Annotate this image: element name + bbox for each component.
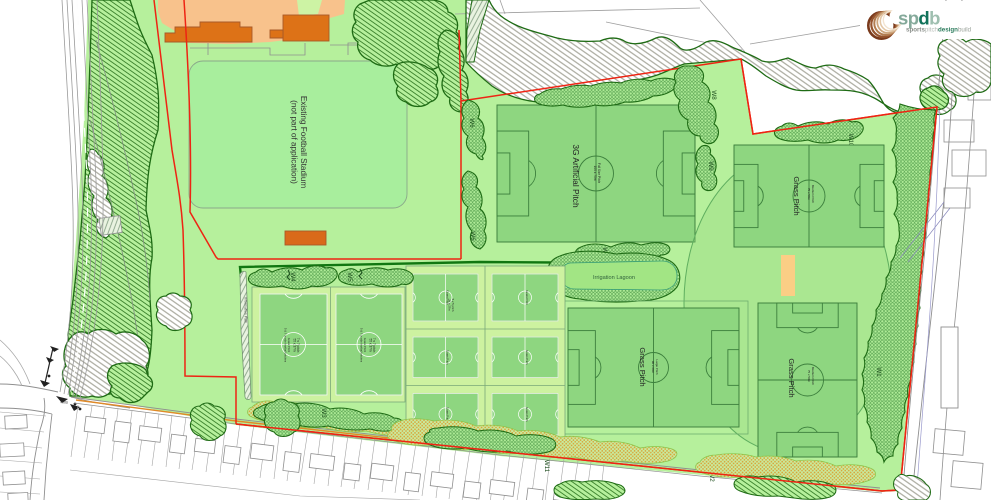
- svg-text:Grass Pitch: Grass Pitch: [525, 290, 529, 305]
- svg-text:Grass Pitch: Grass Pitch: [446, 350, 450, 365]
- svg-text:3000: 3000: [60, 400, 68, 405]
- svg-text:W3: W3: [320, 408, 327, 418]
- svg-text:3G Artificial Pitch: 3G Artificial Pitch: [571, 144, 581, 208]
- svg-text:Grass Pitch: Grass Pitch: [446, 407, 450, 422]
- svg-text:spdb: spdb: [898, 8, 940, 29]
- svg-text:Irrigation Lagoon: Irrigation Lagoon: [593, 275, 635, 281]
- svg-text:W6: W6: [469, 231, 476, 241]
- svg-text:Existing Football Stadium: Existing Football Stadium: [299, 96, 308, 189]
- svg-text:75 x 50m: 75 x 50m: [807, 370, 811, 383]
- svg-text:W1: W1: [875, 367, 882, 377]
- svg-text:Grass Pitch: Grass Pitch: [525, 350, 529, 365]
- svg-text:Grass Pitch: Grass Pitch: [638, 347, 647, 386]
- svg-text:5 & 7 a side football pitches: 5 & 7 a side football pitches: [360, 328, 364, 363]
- svg-text:(not part of application): (not part of application): [290, 100, 299, 184]
- svg-text:5 & 7 a side football pitches: 5 & 7 a side football pitches: [284, 328, 288, 363]
- svg-text:Grass Pitch: Grass Pitch: [792, 176, 801, 215]
- svg-text:36 x 27m: 36 x 27m: [448, 299, 452, 311]
- svg-text:W5: W5: [346, 272, 353, 282]
- svg-text:55 x 37m: 55 x 37m: [293, 338, 297, 351]
- svg-text:Grass Pitch: Grass Pitch: [525, 407, 529, 422]
- svg-text:Grass Pitch: Grass Pitch: [787, 358, 796, 397]
- svg-text:Information Path: Information Path: [244, 297, 248, 323]
- svg-text:W6: W6: [468, 118, 475, 128]
- svg-text:100 x 70m: 100 x 70m: [593, 166, 597, 181]
- svg-text:W11: W11: [543, 460, 550, 473]
- svg-text:W8: W8: [710, 90, 717, 100]
- svg-text:W9: W9: [707, 161, 714, 171]
- svg-text:90 x 60m: 90 x 60m: [651, 361, 655, 374]
- svg-text:55 x 37m: 55 x 37m: [369, 338, 373, 351]
- svg-text:75 x 50m: 75 x 50m: [807, 188, 811, 201]
- svg-text:sportspitchdesignbuild: sportspitchdesignbuild: [906, 27, 972, 34]
